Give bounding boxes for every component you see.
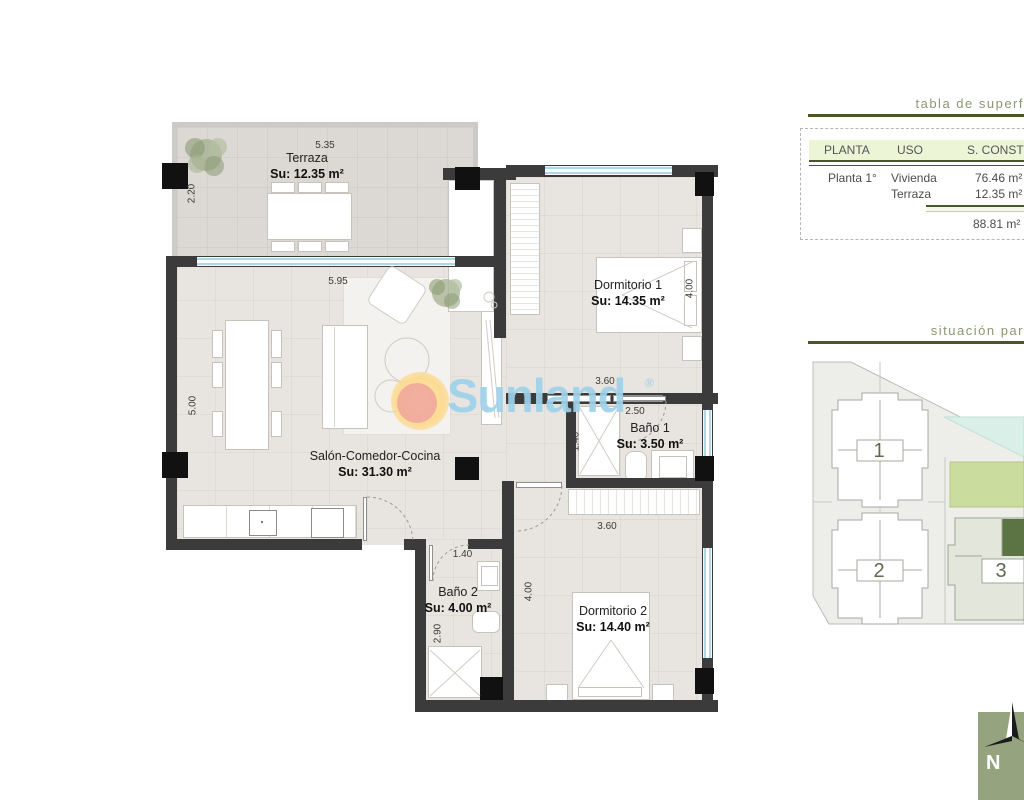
chair — [298, 241, 322, 252]
sofa — [322, 325, 368, 429]
dim-terraza-width: 5.35 — [300, 140, 350, 151]
chair — [271, 362, 282, 388]
chair — [271, 182, 295, 193]
nightstand — [546, 684, 568, 701]
watermark-sun-core — [397, 383, 437, 423]
garden-area — [950, 462, 1024, 507]
wall — [166, 539, 362, 550]
table-header-row: PLANTA USO S. CONST — [809, 140, 1024, 162]
dim-bano2-width: 1.40 — [440, 549, 485, 560]
row-uso: Vivienda — [891, 171, 937, 185]
building-number-2: 2 — [868, 560, 890, 583]
chair — [271, 330, 282, 358]
col-uso: USO — [897, 143, 923, 157]
nightstand — [682, 336, 702, 361]
row-uso: Terraza — [891, 187, 931, 201]
terrace-table — [267, 193, 352, 240]
surface-table-title: tabla de superf — [824, 96, 1024, 111]
dim-dorm2-depth: 4.00 — [524, 573, 535, 611]
dining-table — [225, 320, 269, 450]
total-separator — [926, 205, 1024, 212]
dim-dorm2-width: 3.60 — [582, 521, 632, 532]
dim-terraza-depth: 2.20 — [187, 174, 198, 214]
compass-north-label: N — [986, 752, 1000, 775]
room-label-salon: Salón-Comedor-Cocina Su: 31.30 m² — [280, 449, 470, 480]
pool-area — [944, 417, 1024, 457]
row-superficie: 76.46 m² — [975, 171, 1022, 185]
room-label-dormitorio1: Dormitorio 1 Su: 14.35 m² — [568, 278, 688, 309]
stairwell-void — [448, 180, 494, 312]
highlighted-unit — [1002, 519, 1024, 556]
wardrobe — [510, 183, 540, 315]
toilet — [625, 451, 647, 480]
registered-mark: ® — [645, 376, 654, 390]
watermark-brand: Sunland — [447, 368, 625, 423]
dim-bano1-depth: 1.40 — [571, 423, 582, 461]
washbasin-bowl — [481, 566, 498, 586]
site-plan-title: situación par — [824, 323, 1024, 338]
chair — [325, 241, 349, 252]
row-planta: Planta 1° — [828, 171, 877, 185]
surface-table: PLANTA USO S. CONST Planta 1° Vivienda 7… — [800, 128, 1024, 240]
washbasin-bowl — [659, 456, 687, 478]
cooktop — [311, 508, 344, 538]
window — [197, 257, 455, 266]
room-label-terraza: Terraza Su: 12.35 m² — [232, 151, 382, 182]
pillar — [455, 167, 480, 190]
pillar — [162, 452, 188, 478]
total-value: 88.81 m² — [973, 217, 1020, 231]
site-plan — [813, 362, 1024, 624]
pillar — [480, 677, 503, 700]
chair — [325, 182, 349, 193]
building-number-1: 1 — [868, 440, 890, 463]
building-number-3: 3 — [990, 560, 1012, 583]
chair — [271, 411, 282, 437]
pillow — [578, 687, 642, 697]
floorplan-page: 5.35 2.20 5.95 5.00 4.00 3.60 2.50 1.40 … — [0, 0, 1024, 800]
title-underline — [808, 114, 1024, 117]
dim-bano2-depth: 2.90 — [433, 615, 444, 653]
dim-salon-depth: 5.00 — [188, 386, 199, 426]
nightstand — [652, 684, 674, 701]
door-leaf — [516, 482, 562, 488]
room-label-bano1: Baño 1 Su: 3.50 m² — [600, 421, 700, 452]
wall — [415, 539, 426, 711]
pillar — [162, 163, 188, 189]
door-leaf — [622, 396, 666, 401]
dim-salon-width: 5.95 — [313, 276, 363, 287]
nightstand — [682, 228, 702, 253]
door-leaf — [429, 545, 433, 581]
kitchen-sink — [249, 510, 277, 536]
row-superficie: 12.35 m² — [975, 187, 1022, 201]
chair — [271, 241, 295, 252]
col-sconst: S. CONST — [967, 143, 1024, 157]
window — [703, 410, 712, 456]
kitchen-sink-drain — [261, 521, 263, 523]
chair — [212, 411, 223, 437]
sofa-back-line — [334, 327, 335, 427]
col-planta: PLANTA — [824, 143, 870, 157]
wardrobe — [568, 489, 700, 515]
chair — [212, 362, 223, 388]
building-3 — [948, 518, 1024, 620]
window — [703, 548, 712, 658]
chair — [212, 330, 223, 358]
wall — [468, 539, 502, 549]
pillar — [695, 456, 714, 481]
wall — [566, 478, 713, 488]
room-label-bano2: Baño 2 Su: 4.00 m² — [412, 585, 504, 616]
door-leaf — [363, 497, 367, 541]
compass-square — [978, 712, 1024, 800]
shower — [428, 646, 482, 698]
pillar — [695, 668, 714, 694]
pillar — [695, 172, 714, 196]
room-label-dormitorio2: Dormitorio 2 Su: 14.40 m² — [553, 604, 673, 635]
chair — [298, 182, 322, 193]
window — [545, 166, 672, 175]
title-underline — [808, 341, 1024, 344]
wall — [415, 700, 718, 712]
header-underline2 — [809, 165, 1024, 166]
wall — [494, 168, 506, 338]
wall — [166, 256, 177, 550]
